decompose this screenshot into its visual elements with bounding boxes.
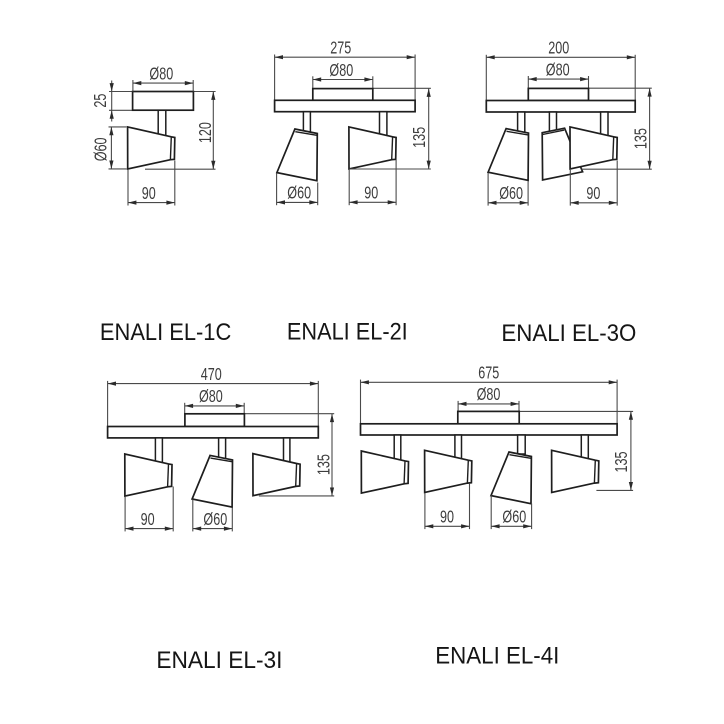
svg-text:Ø80: Ø80: [546, 60, 570, 80]
svg-text:470: 470: [201, 365, 222, 385]
svg-text:Ø60: Ø60: [499, 184, 523, 204]
svg-text:90: 90: [440, 508, 454, 528]
svg-text:ENALI EL-2I: ENALI EL-2I: [287, 317, 408, 344]
svg-text:Ø80: Ø80: [199, 387, 223, 407]
svg-text:675: 675: [478, 364, 499, 384]
svg-text:90: 90: [141, 510, 155, 530]
svg-text:ENALI EL-3I: ENALI EL-3I: [156, 647, 282, 674]
svg-text:ENALI EL-3O: ENALI EL-3O: [501, 319, 636, 346]
svg-text:ENALI EL-1C: ENALI EL-1C: [100, 318, 231, 345]
svg-text:Ø80: Ø80: [329, 61, 353, 81]
svg-text:135: 135: [612, 451, 632, 472]
svg-text:120: 120: [196, 122, 216, 143]
svg-text:90: 90: [142, 184, 156, 204]
svg-text:Ø60: Ø60: [92, 138, 112, 162]
svg-text:Ø60: Ø60: [203, 510, 227, 530]
svg-text:90: 90: [586, 184, 600, 204]
svg-text:Ø80: Ø80: [477, 385, 501, 405]
svg-text:200: 200: [548, 39, 569, 59]
svg-text:ENALI EL-4I: ENALI EL-4I: [435, 642, 559, 669]
svg-text:135: 135: [314, 454, 334, 475]
svg-text:Ø60: Ø60: [287, 184, 311, 204]
svg-text:135: 135: [631, 128, 651, 149]
svg-text:275: 275: [330, 39, 351, 59]
svg-text:90: 90: [364, 184, 378, 204]
svg-text:Ø80: Ø80: [149, 64, 173, 84]
svg-text:Ø60: Ø60: [502, 508, 526, 528]
svg-text:135: 135: [410, 127, 430, 148]
svg-text:25: 25: [91, 94, 111, 108]
